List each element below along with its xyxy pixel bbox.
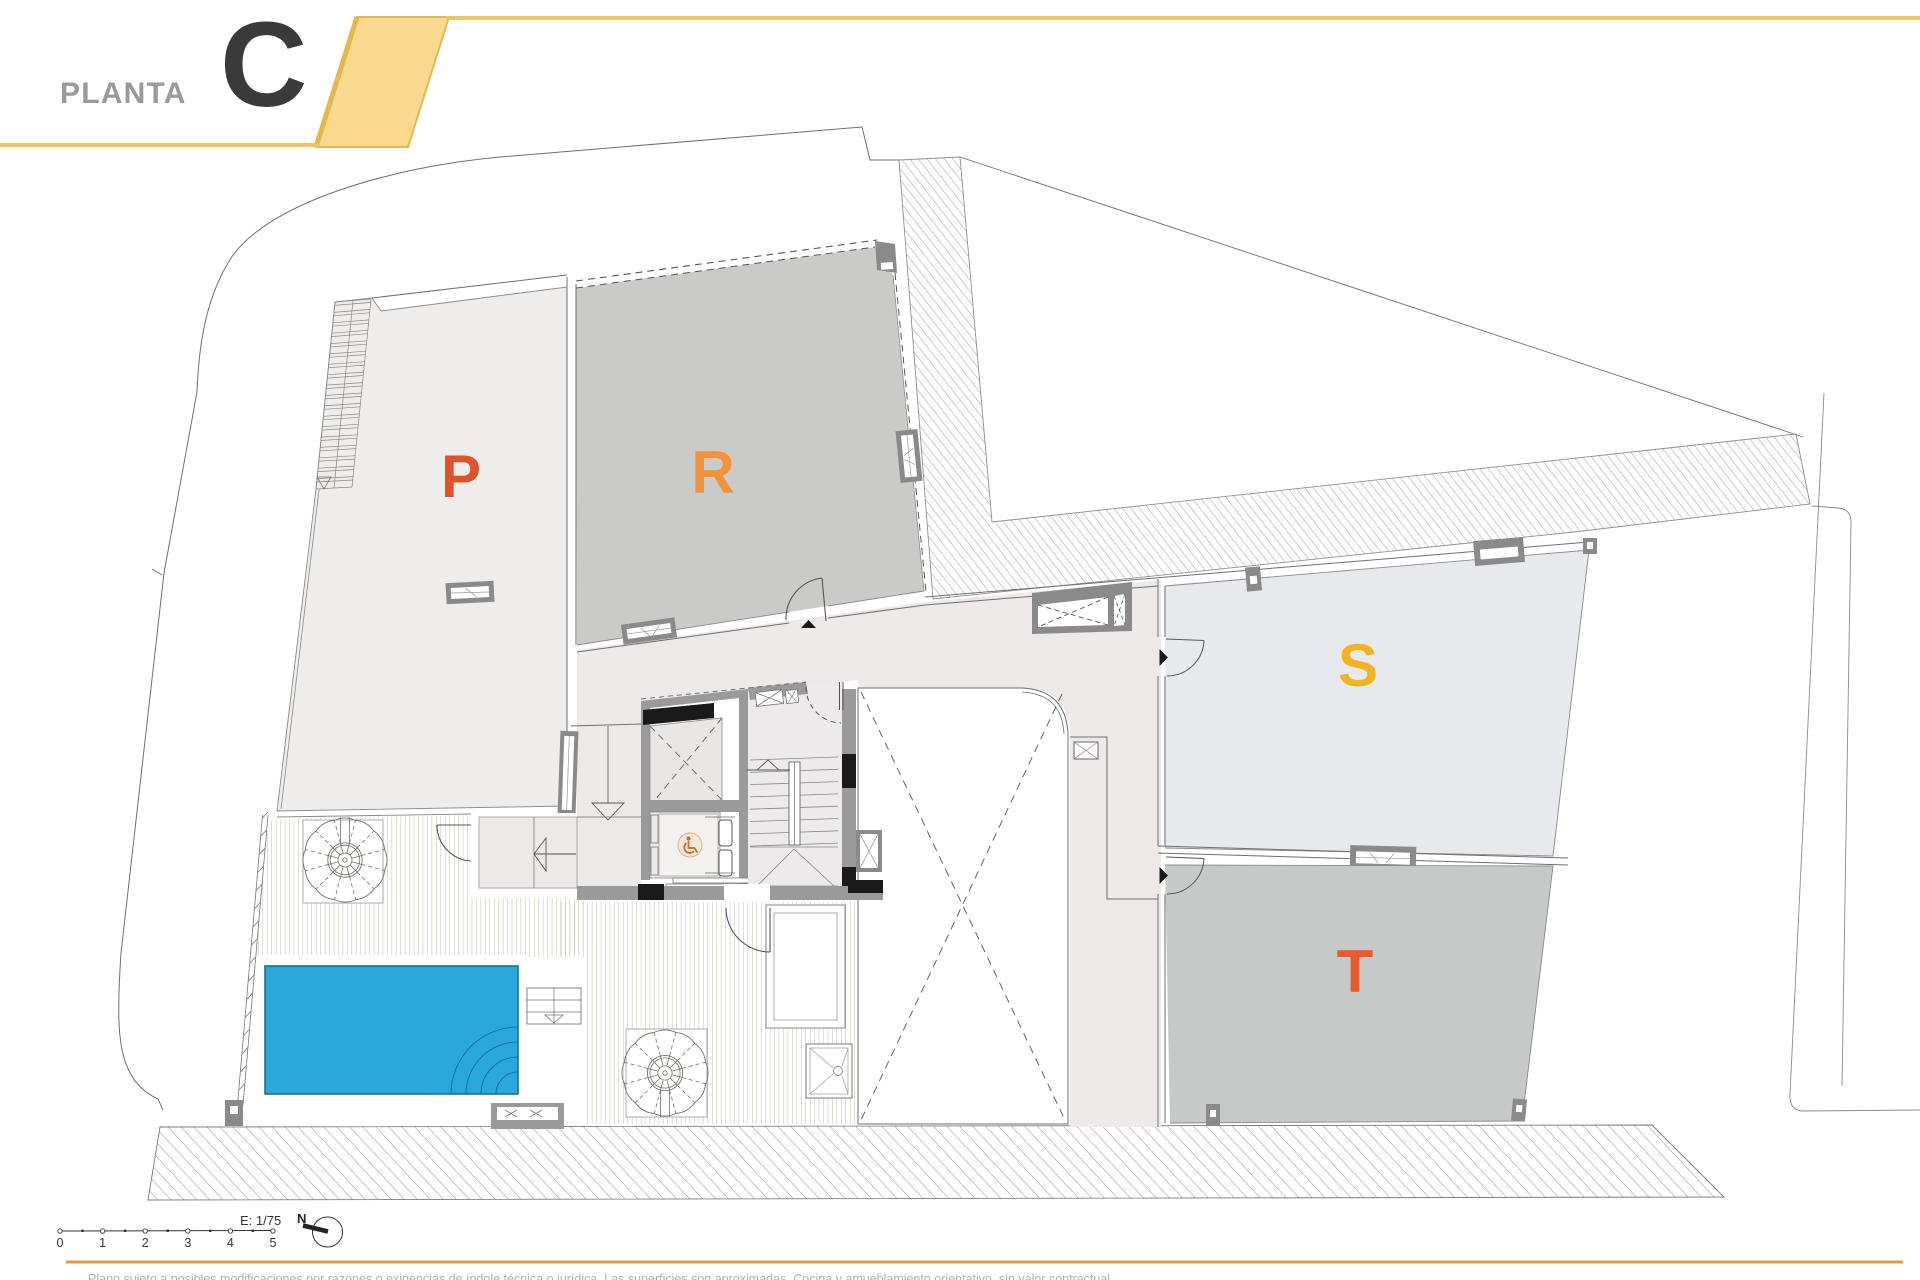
svg-text:C: C — [220, 0, 307, 132]
svg-text:E: 1/75: E: 1/75 — [240, 1213, 281, 1228]
svg-text:R: R — [691, 439, 734, 506]
svg-text:3: 3 — [184, 1236, 191, 1250]
svg-text:1: 1 — [99, 1236, 106, 1250]
svg-text:T: T — [1337, 938, 1374, 1005]
svg-text:P: P — [441, 443, 481, 510]
svg-text:Plano sujeto a posibles modifi: Plano sujeto a posibles modificaciones p… — [88, 1272, 1110, 1280]
svg-text:5: 5 — [270, 1236, 277, 1250]
svg-text:PLANTA: PLANTA — [60, 77, 187, 110]
svg-text:0: 0 — [57, 1236, 64, 1250]
svg-text:S: S — [1338, 632, 1378, 699]
svg-text:2: 2 — [142, 1236, 149, 1250]
svg-text:4: 4 — [227, 1236, 234, 1250]
